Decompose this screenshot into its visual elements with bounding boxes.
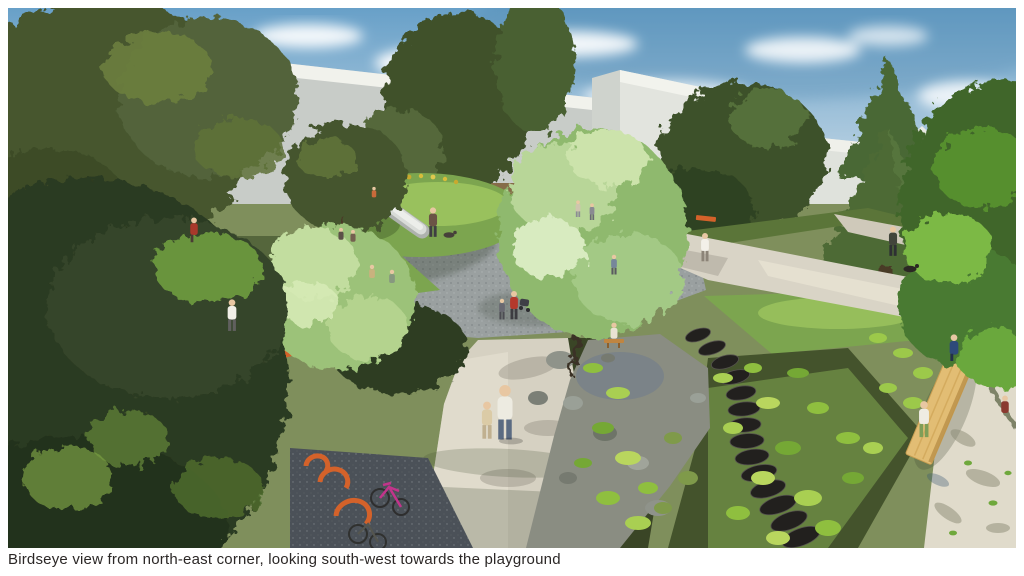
figure-caption: Birdseye view from north-east corner, lo… [8, 551, 1008, 568]
park-rendering-figure [8, 8, 1016, 548]
kid-slide [372, 187, 377, 198]
person-bench-sitter [611, 323, 618, 339]
park-rendering [8, 8, 1016, 548]
person-grass-sitter-1 [369, 265, 375, 278]
walker-shadow [499, 438, 523, 445]
kid-playground-bench-2 [350, 230, 355, 242]
person-grass-sitter-2 [389, 270, 395, 283]
person-right-edge-sitter [1001, 396, 1009, 414]
kid-playground-bench-1 [338, 228, 343, 240]
